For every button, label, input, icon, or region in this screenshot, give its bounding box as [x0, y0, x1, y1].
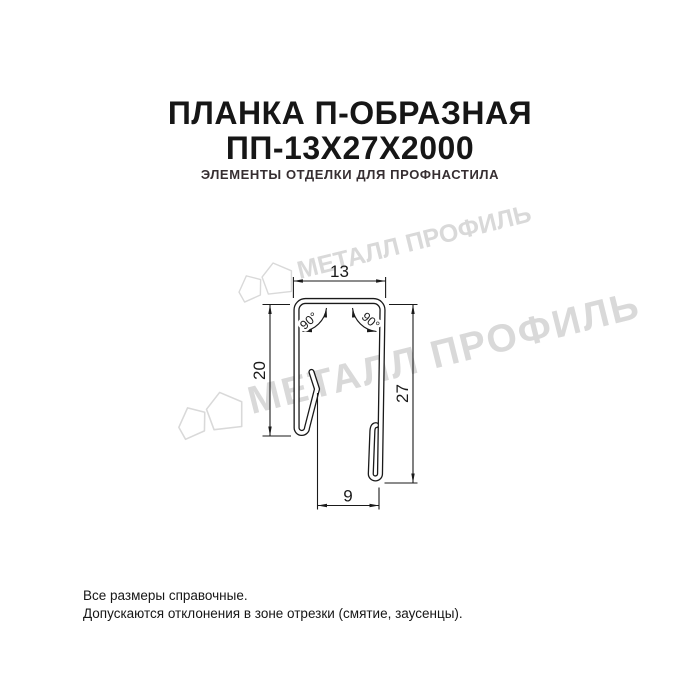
metall-profil-logo-icon	[173, 388, 247, 442]
watermark-brand-text: МЕТАЛЛ ПРОФИЛЬ	[244, 284, 645, 423]
angle-value-right: 90°	[359, 310, 382, 333]
watermarks: МЕТАЛЛ ПРОФИЛЬ МЕТАЛЛ ПРОФИЛЬ	[172, 200, 645, 442]
drawing-page: ПЛАНКА П-ОБРАЗНАЯ ПП-13Х27Х2000 ЭЛЕМЕНТЫ…	[0, 0, 700, 700]
dimension-value-left-height: 20	[250, 361, 269, 380]
footer-note-line2: Допускаются отклонения в зоне отрезки (с…	[83, 605, 463, 623]
dimension-right-height: 27	[385, 305, 418, 484]
watermark-top: МЕТАЛЛ ПРОФИЛЬ	[234, 200, 535, 304]
angle-dimension-right: 90°	[353, 308, 383, 332]
dimension-value-top-width: 13	[330, 262, 349, 281]
angle-dimension-left: 90°	[297, 308, 326, 332]
angle-value-left: 90°	[297, 310, 320, 333]
metall-profil-logo-icon	[234, 259, 296, 304]
dimension-value-right-height: 27	[393, 384, 412, 403]
dimension-value-bottom-width: 9	[343, 487, 352, 506]
footer-notes: Все размеры справочные. Допускаются откл…	[83, 587, 463, 622]
footer-note-line1: Все размеры справочные.	[83, 587, 463, 605]
watermark-center: МЕТАЛЛ ПРОФИЛЬ	[172, 284, 645, 442]
